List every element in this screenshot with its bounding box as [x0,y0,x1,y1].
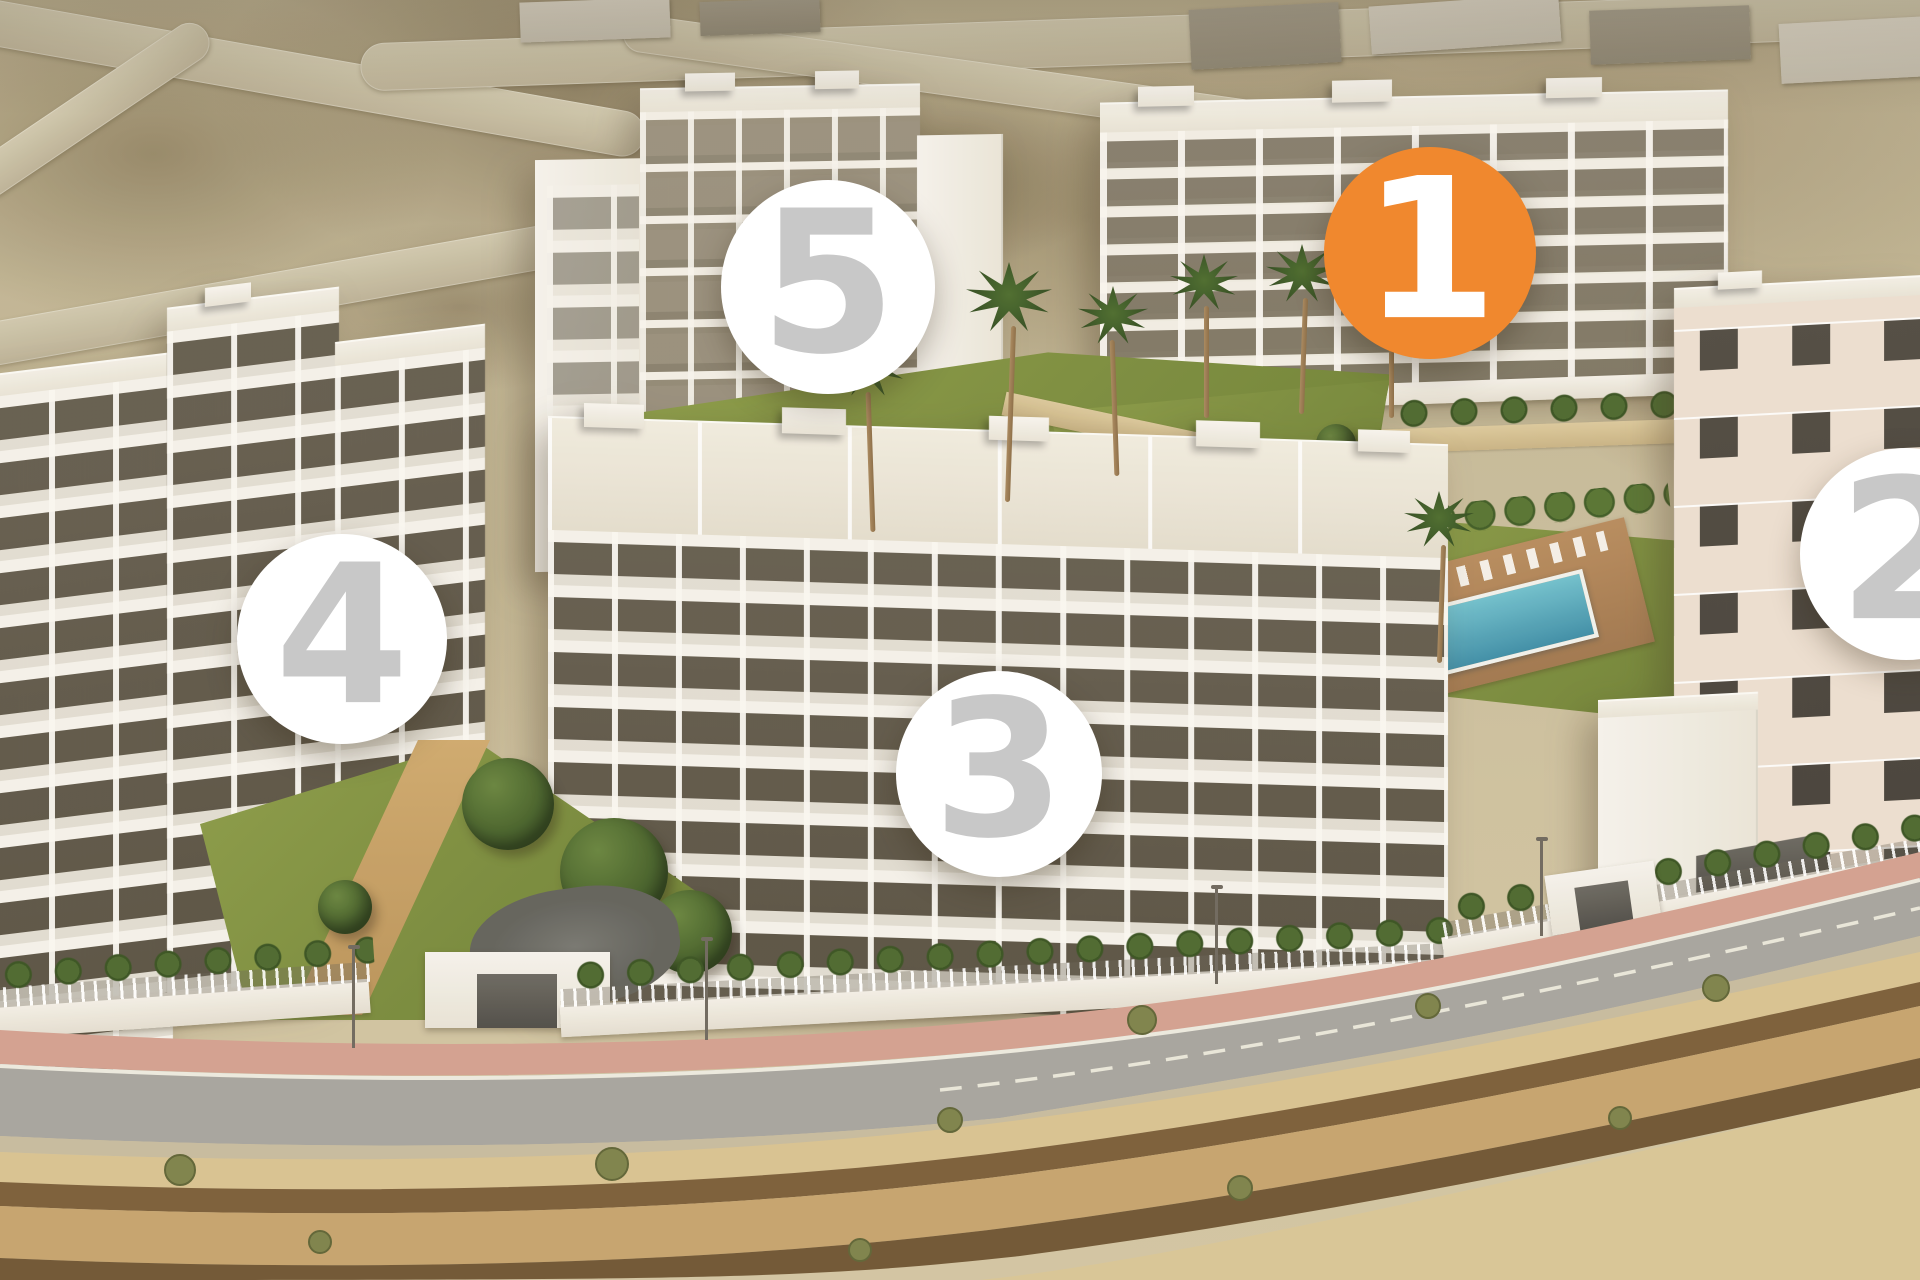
phase-marker-number: 4 [275,539,409,732]
phase-marker-5[interactable]: 5 [721,180,935,394]
phase-marker-number: 5 [759,185,896,382]
phase-marker-1[interactable]: 1 [1324,147,1536,359]
phase-marker-3[interactable]: 3 [896,671,1102,877]
aerial-render-scene: 12345 [0,0,1920,1280]
phase-marker-number: 3 [933,675,1065,865]
markers-layer: 12345 [0,0,1920,1280]
phase-marker-number: 2 [1838,453,1920,648]
phase-marker-4[interactable]: 4 [237,534,447,744]
phase-marker-2[interactable]: 2 [1800,448,1920,660]
phase-marker-number: 1 [1362,152,1498,347]
